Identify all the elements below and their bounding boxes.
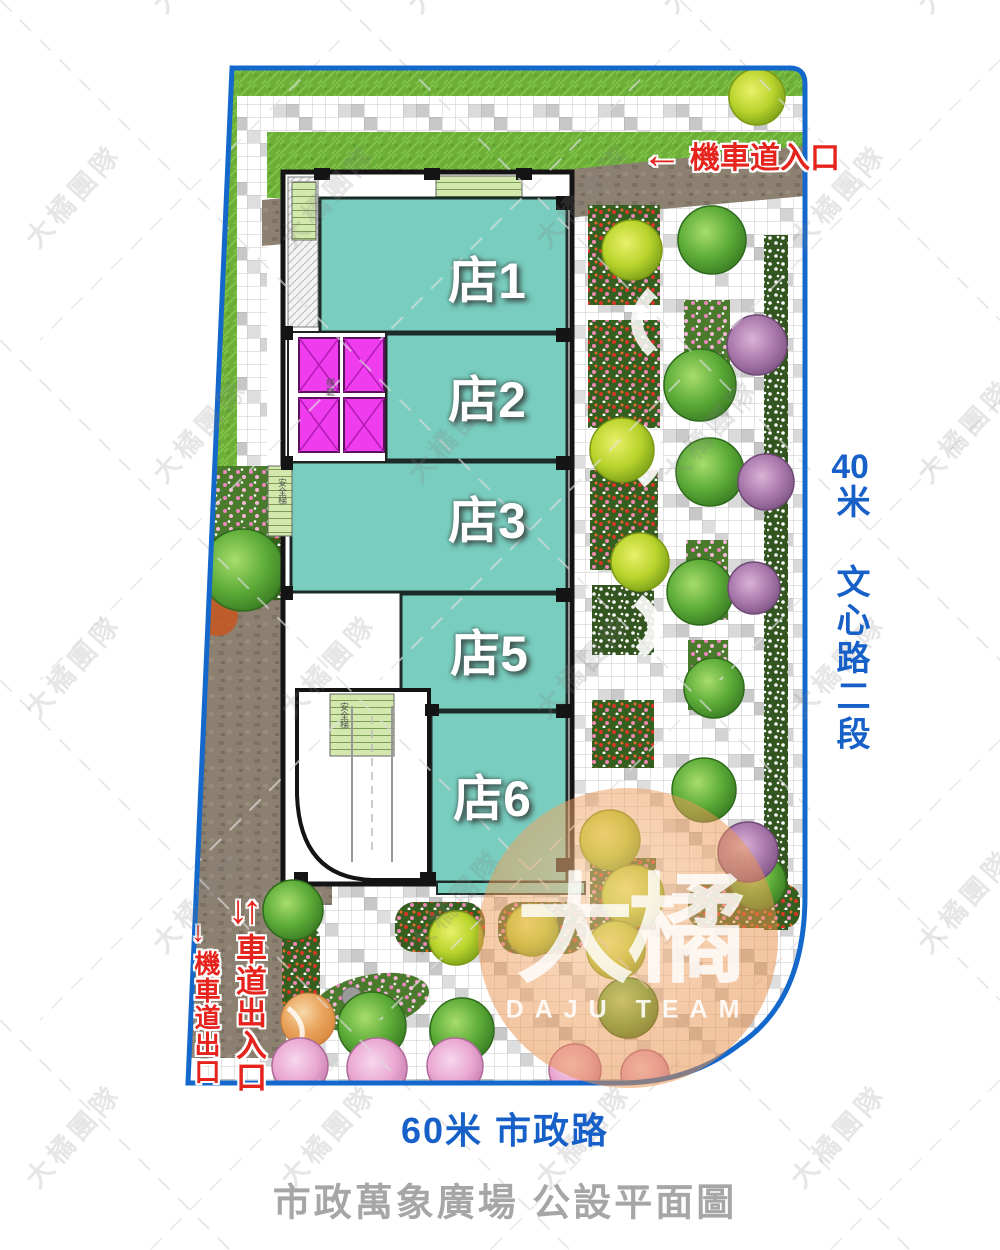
moto-exit-label: 機車道出口 (188, 950, 225, 1085)
store-2-label: 店2 (448, 360, 526, 432)
moto-entry-annotation: ← 機車道入口 (642, 133, 840, 177)
down-arrow-icon: ↓ (191, 916, 205, 948)
up-down-arrows-icon: ↓↑ (228, 888, 256, 933)
left-arrow-icon: ← (642, 140, 682, 170)
store-5-label: 店5 (450, 614, 528, 686)
site-plan-page: 大橘團隊大橘團隊大橘團隊大橘團隊大橘團隊大橘團隊大橘團隊大橘團隊大橘團隊大橘團隊… (0, 0, 1000, 1250)
page-title: 市政萬象廣場 公設平面圖 (273, 1172, 738, 1227)
drive-gate-label: 車道出入口 (226, 933, 271, 1093)
road-name-text: 米 文心路二段 (831, 484, 869, 754)
store-1-label: 店1 (448, 241, 526, 313)
road-name-bottom: 60米 市政路 (401, 1102, 609, 1154)
store-6-label: 店6 (453, 759, 531, 831)
moto-entry-label: 機車道入口 (690, 133, 840, 177)
stair-label: 安全梯 (338, 702, 351, 729)
elevator-lobby-label: 梯廳 (324, 378, 337, 396)
road-width-number: 40 (831, 450, 869, 484)
road-name-right: 40米 文心路二段 (826, 450, 875, 754)
stair-label: 安全梯 (276, 478, 289, 505)
store-3-label: 店3 (448, 481, 526, 553)
